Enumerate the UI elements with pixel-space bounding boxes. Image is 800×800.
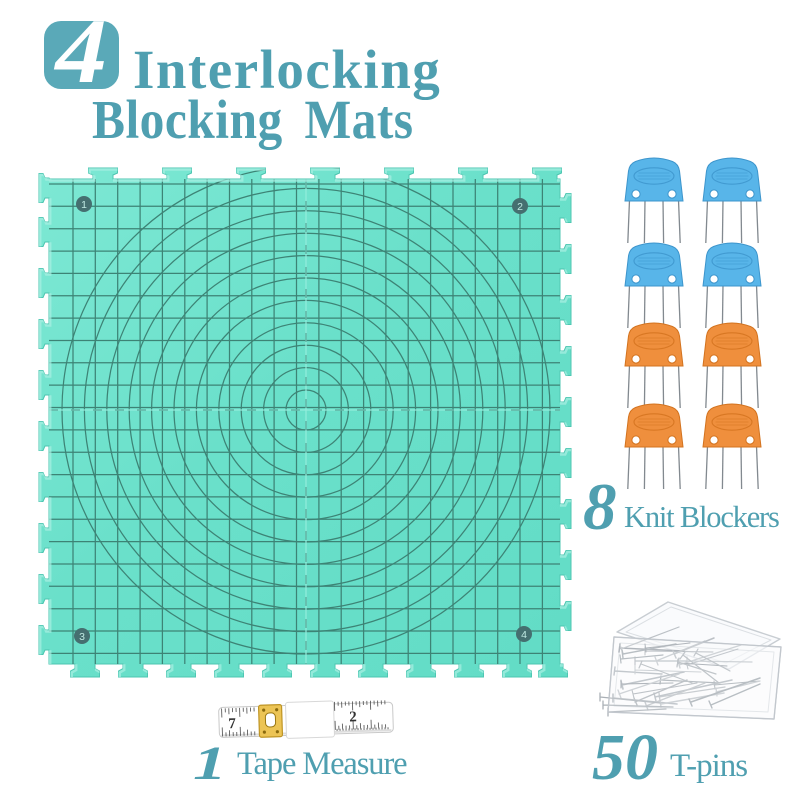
svg-text:2: 2 bbox=[349, 709, 357, 725]
svg-text:7: 7 bbox=[228, 716, 236, 732]
